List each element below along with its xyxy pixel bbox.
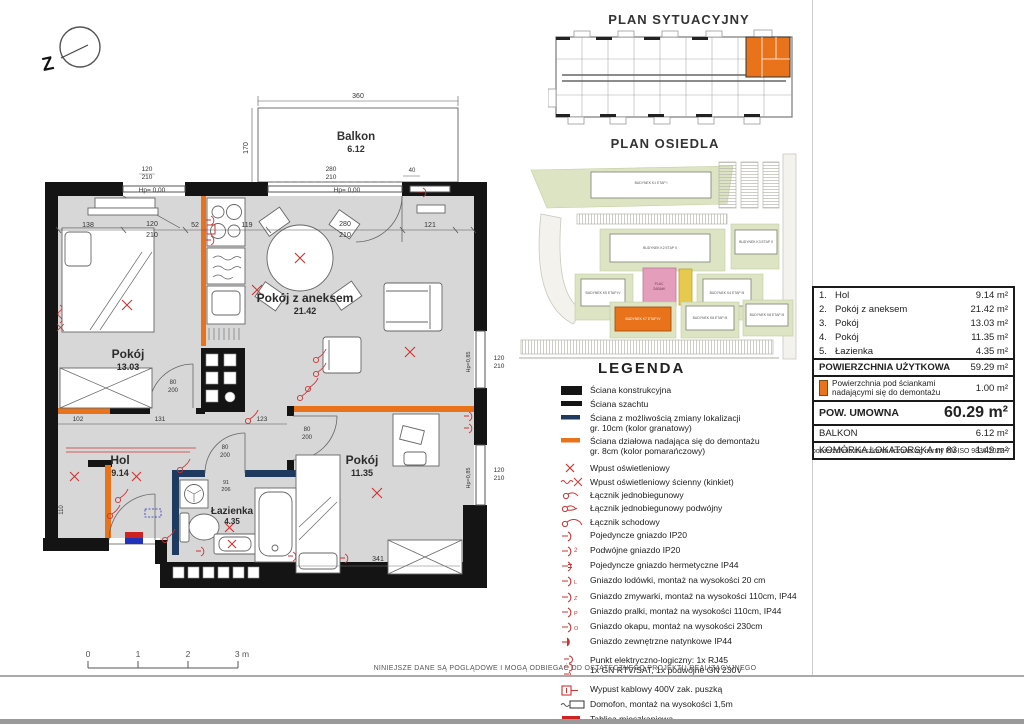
legend-item: Wpust oświetleniowy (560, 463, 816, 473)
legend-item: Łącznik jednobiegunowy podwójny (560, 503, 816, 513)
svg-text:BUDYNEK K3 ETAP II: BUDYNEK K3 ETAP II (739, 240, 773, 244)
room-area-pokoj1: 13.03 (117, 362, 140, 372)
wall-structural-icon (560, 385, 590, 396)
svg-text:102: 102 (73, 416, 84, 423)
wardrobe-2 (388, 540, 462, 574)
svg-text:120: 120 (494, 467, 505, 474)
svg-text:BUDYNEK K2 ETAP II: BUDYNEK K2 ETAP II (643, 246, 677, 250)
toilet (180, 513, 219, 542)
svg-text:0: 0 (86, 649, 91, 659)
table-row: 1.Hol9.14 m² (814, 288, 1013, 302)
svg-text:3 m: 3 m (235, 649, 249, 659)
table-row: 5.Łazienka4.35 m² (814, 344, 1013, 358)
washing-machine (180, 480, 208, 508)
legend-item: O Gniazdo okapu, montaż na wysokości 230… (560, 621, 816, 633)
light-point-icon (560, 463, 590, 473)
room-name-aneks: Pokój z aneksem (257, 291, 354, 305)
legend-item: Domofon, montaż na wysokości 1,5m (560, 699, 816, 710)
svg-text:O: O (574, 626, 579, 632)
estate-plan-drawing: BUDYNEK K1 ETAP I BUDYNEK K2 ETAP II BUD… (515, 152, 815, 364)
svg-text:Hp=0,85: Hp=0,85 (466, 468, 472, 489)
svg-text:210: 210 (142, 174, 153, 181)
svg-text:119: 119 (241, 222, 252, 229)
legend-item: Ściana szachtu (560, 399, 816, 409)
wardrobe (60, 368, 152, 408)
svg-text:280: 280 (339, 221, 351, 228)
svg-text:BUDYNEK K7 ETAP IV: BUDYNEK K7 ETAP IV (625, 317, 661, 321)
svg-text:200: 200 (302, 435, 313, 441)
svg-text:120: 120 (146, 221, 158, 228)
svg-text:210: 210 (494, 363, 505, 370)
svg-text:BUDYNEK K6 ETAP III: BUDYNEK K6 ETAP III (693, 316, 728, 320)
svg-text:2: 2 (186, 649, 191, 659)
footer-bar (0, 719, 1024, 724)
balcony-area: 6.12 (347, 144, 365, 154)
svg-text:206: 206 (221, 487, 230, 493)
wall-shaft-icon (560, 399, 590, 408)
radiator-2 (417, 205, 445, 213)
table-row: 2.Pokój z aneksem21.42 m² (814, 302, 1013, 316)
socket-dishwasher-icon: Z (560, 591, 590, 603)
legend-item: 2 Podwójne gniazdo IP20 (560, 545, 816, 557)
socket-external-icon (560, 636, 590, 648)
highlighted-unit (746, 37, 790, 77)
svg-text:52: 52 (191, 222, 199, 229)
socket-washer-icon: P (560, 606, 590, 618)
svg-text:210: 210 (146, 232, 158, 239)
svg-text:200: 200 (168, 388, 179, 394)
room-area-pokoj2: 11.35 (351, 468, 373, 478)
radiator (88, 208, 158, 215)
kitchen-fridge (207, 248, 245, 284)
table-row: 4.Pokój11.35 m² (814, 330, 1013, 344)
intercom-icon (560, 699, 590, 710)
svg-text:Hp=0,85: Hp=0,85 (466, 352, 472, 373)
svg-text:PLAC: PLAC (655, 282, 664, 286)
room-area-aneks: 21.42 (294, 306, 317, 316)
north-arrow-icon: Z (40, 27, 100, 76)
legend-item: Ściana działowa nadająca się do demontaż… (560, 436, 816, 456)
washbasin (214, 534, 256, 554)
svg-text:2: 2 (574, 548, 578, 554)
estate-plan-title: PLAN OSIEDLA (515, 136, 815, 151)
area-table: 1.Hol9.14 m² 2.Pokój z aneksem21.42 m² 3… (812, 286, 1015, 460)
svg-text:210: 210 (339, 232, 351, 239)
svg-text:BUDYNEK K4 ETAP III: BUDYNEK K4 ETAP III (710, 291, 745, 295)
svg-text:Hp= 0,00: Hp= 0,00 (139, 187, 166, 194)
wall-orange-icon (560, 436, 590, 445)
yellow-area (679, 269, 692, 305)
dimension-label: 360 (352, 93, 364, 100)
legend-item: Wpust oświetleniowy ścienny (kinkiet) (560, 477, 816, 487)
table-row: 3.Pokój13.03 m² (814, 316, 1013, 330)
socket-ip44-icon (560, 560, 590, 572)
footer-divider (0, 675, 1024, 677)
floorplan-drawing: Z Balkon 6.12 360 170 40 (0, 0, 540, 700)
svg-text:131: 131 (155, 416, 166, 423)
room-name-pokoj1: Pokój (112, 347, 145, 361)
svg-text:123: 123 (257, 416, 268, 423)
estate-plan-section: PLAN OSIEDLA BUDYNEK K1 ETAP I (515, 136, 815, 369)
svg-text:BUDYNEK K1 ETAP I: BUDYNEK K1 ETAP I (635, 181, 668, 185)
dimension-label: 170 (243, 142, 250, 154)
armchair (323, 337, 361, 373)
socket-double-icon: 2 (560, 545, 590, 557)
svg-text:341: 341 (372, 556, 384, 563)
legend-item: Ściana z możliwością zmiany lokalizacji … (560, 413, 816, 433)
balcony: Balkon 6.12 360 170 40 (243, 93, 458, 182)
building-k1 (591, 172, 711, 198)
legend-item: Łącznik schodowy (560, 517, 816, 527)
bed-double (62, 228, 154, 332)
legend-item: Ściana konstrukcyjna (560, 385, 816, 396)
svg-text:80: 80 (304, 427, 311, 433)
bed-single (296, 455, 340, 573)
legend-item: Z Gniazdo zmywarki, montaż na wysokości … (560, 591, 816, 603)
wall-light-icon (560, 477, 590, 487)
legend-item: Pojedyncze gniazdo hermetyczne IP44 (560, 560, 816, 572)
demountable-note-row: Powierzchnia pod ściankami nadającymi si… (814, 375, 1013, 400)
balcony-row: BALKON6.12 m² (814, 424, 1013, 441)
svg-text:BUDYNEK K5 ETAP IV: BUDYNEK K5 ETAP IV (585, 291, 621, 295)
switch-single-icon (560, 490, 590, 500)
svg-text:210: 210 (326, 174, 337, 181)
orange-wall-icon (819, 380, 828, 396)
socket-fridge-icon: L (560, 575, 590, 587)
wall-navy-icon (560, 413, 590, 422)
sofa (384, 283, 442, 331)
room-name-pokoj2: Pokój (346, 453, 379, 467)
room-name-lazienka: Łazienka (211, 506, 254, 517)
svg-text:L: L (574, 580, 577, 586)
bathtub (255, 488, 296, 562)
svg-text:110: 110 (59, 505, 65, 515)
switch-stair-icon (560, 517, 590, 527)
svg-text:80: 80 (222, 445, 229, 451)
situational-plan-title: PLAN SYTUACYJNY (548, 12, 810, 27)
tablica-mieszkaniowa-icon (125, 532, 143, 544)
cable-outlet-icon (560, 684, 590, 696)
usable-area-row: POWIERZCHNIA UŻYTKOWA59.29 m² (814, 358, 1013, 375)
contract-area-row: POW. UMOWNA60.29 m² (814, 400, 1013, 424)
svg-text:Hp= 0,00: Hp= 0,00 (334, 187, 361, 194)
room-name-hol: Hol (110, 453, 129, 467)
svg-text:P: P (574, 611, 578, 617)
svg-text:120: 120 (142, 166, 153, 173)
svg-text:1: 1 (136, 649, 141, 659)
svg-text:200: 200 (220, 453, 231, 459)
legend-item: Pojedyncze gniazdo IP20 (560, 530, 816, 542)
kitchen-stove (207, 198, 245, 246)
svg-text:80: 80 (170, 380, 177, 386)
floorplan-sheet: Z Balkon 6.12 360 170 40 (0, 0, 1024, 724)
legend-item: Gniazdo zewnętrzne natynkowe IP44 (560, 636, 816, 648)
legend-item: Wypust kablowy 400V zak. puszką (560, 684, 816, 696)
svg-text:120: 120 (494, 355, 505, 362)
socket-single-icon (560, 530, 590, 542)
socket-hood-icon: O (560, 621, 590, 633)
room-area-lazienka: 4.35 (224, 517, 240, 526)
room-area-hol: 9.14 (111, 468, 129, 478)
shelf (95, 198, 155, 208)
desk (393, 414, 439, 466)
dimension-label: 40 (409, 168, 416, 174)
legend-item: Łącznik jednobiegunowy (560, 490, 816, 500)
svg-text:BUDYNEK K8 ETAP III: BUDYNEK K8 ETAP III (750, 313, 785, 317)
north-letter: Z (40, 53, 56, 76)
svg-text:138: 138 (82, 222, 94, 229)
legend-title: LEGENDA (598, 360, 816, 377)
situational-plan-section: PLAN SYTUACYJNY (548, 12, 810, 134)
situational-plan-drawing (548, 29, 810, 129)
legend-item: P Gniazdo pralki, montaż na wysokości 11… (560, 606, 816, 618)
balcony-name: Balkon (337, 131, 375, 143)
switch-double-icon (560, 503, 590, 513)
svg-text:121: 121 (424, 222, 436, 229)
legend-item: L Gniazdo lodówki, montaż na wysokości 2… (560, 575, 816, 587)
svg-text:91: 91 (223, 480, 229, 486)
scale-bar: 0 1 2 3 m (86, 649, 249, 668)
svg-text:210: 210 (494, 475, 505, 482)
svg-text:280: 280 (326, 166, 337, 173)
disclaimer-text: NINIEJSZE DANE SĄ POGLĄDOWE I MOGĄ ODBIE… (340, 665, 790, 672)
table-footnote: powierzchnia mieszkania liczona wg normy… (812, 448, 1011, 455)
svg-text:Z: Z (574, 596, 578, 602)
svg-text:ZABAW: ZABAW (653, 287, 666, 291)
